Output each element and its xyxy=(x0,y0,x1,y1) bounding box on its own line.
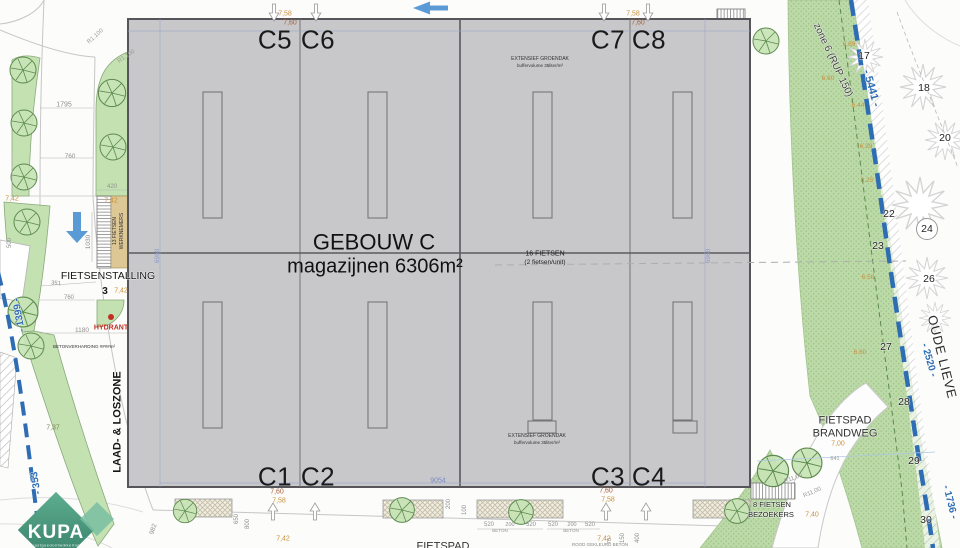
plan-graphics xyxy=(0,0,960,548)
bike-rack-top xyxy=(717,9,745,19)
kupa-logo-text: KUPA xyxy=(28,522,84,544)
hydrant-icon xyxy=(108,314,114,320)
bike-rack-werknemers xyxy=(97,196,111,268)
kupa-logo-tagline: vastgoedontwikkeling xyxy=(32,543,80,548)
bike-rack-label-strip xyxy=(111,196,129,268)
site-plan: C5 C6 C7 C8 C1 C2 C3 C4 GEBOUW C magazij… xyxy=(0,0,960,548)
tree-24-circle xyxy=(917,219,938,240)
